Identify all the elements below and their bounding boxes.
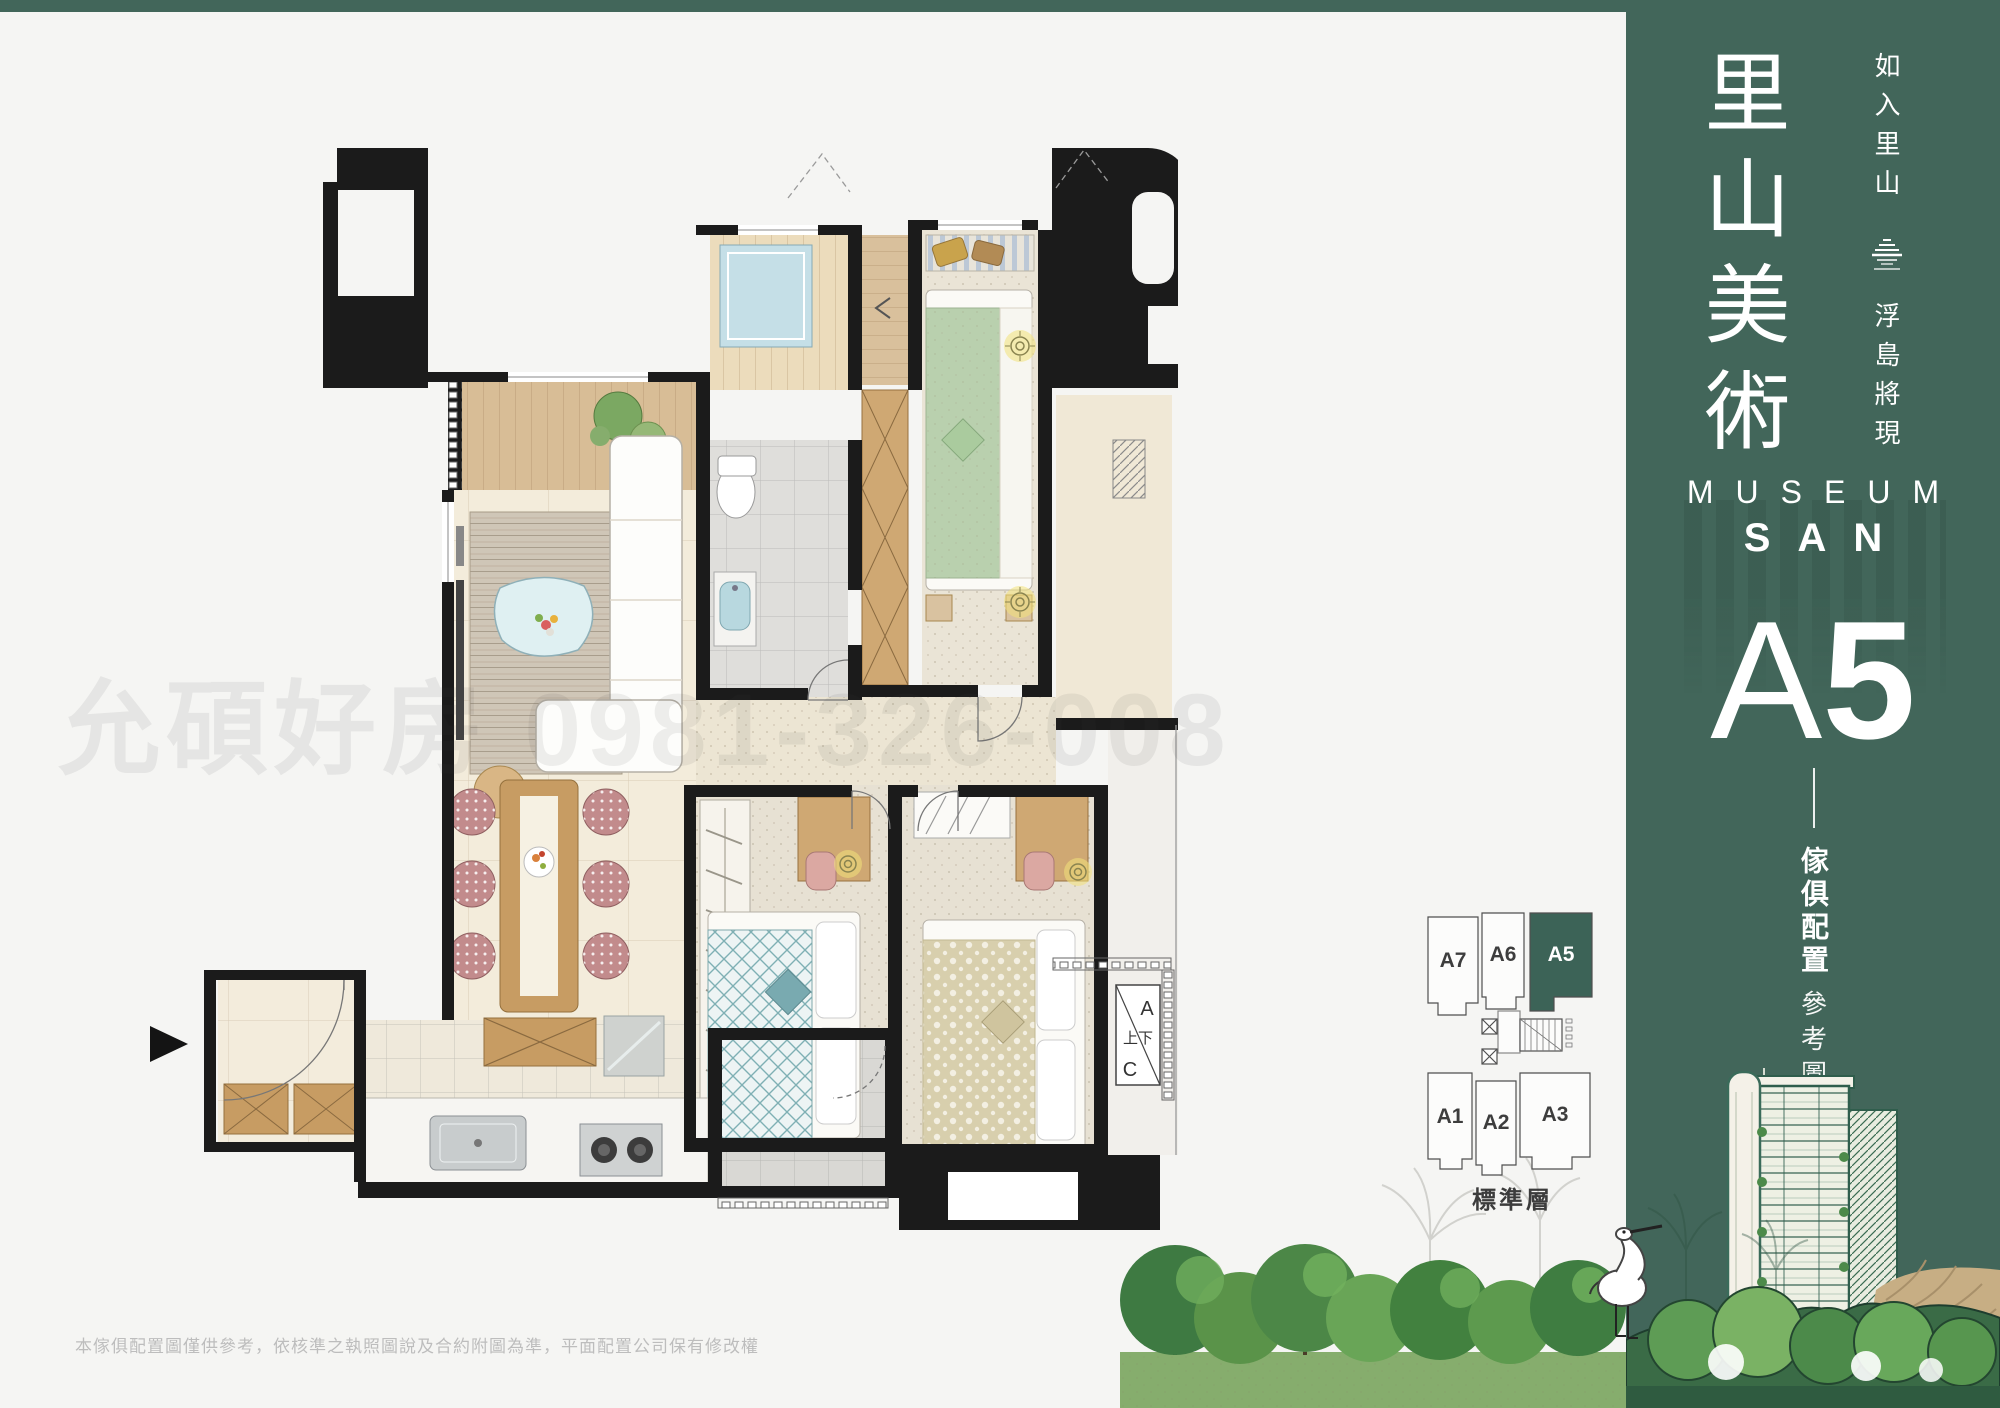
keyplan-label-a3: A3 bbox=[1542, 1103, 1569, 1126]
poster-page: A 上下 C 允碩好房 0981-326-008 bbox=[0, 0, 2000, 1408]
tagline-bottom: 浮島將現 bbox=[1868, 302, 1905, 458]
palm-sketch-icon bbox=[1648, 1194, 1808, 1310]
watermark: 允碩好房 0981-326-008 bbox=[58, 648, 1232, 795]
ceiling-light-icon bbox=[1004, 330, 1036, 362]
pillow bbox=[1037, 930, 1075, 1030]
project-title: 里山美術 bbox=[1696, 48, 1782, 472]
disclaimer-text: 本傢俱配置圖僅供參考，依核準之執照圖說及合約附圖為準，平面配置公司保有修改權 bbox=[75, 1332, 759, 1357]
pillow bbox=[816, 1028, 856, 1124]
terrace-hatch bbox=[1113, 440, 1145, 498]
entrance-arrow-icon bbox=[150, 1026, 188, 1062]
tagline-top: 如入里山 bbox=[1868, 52, 1905, 208]
sidebar-panel: 里山美術 如入里山 浮島將現 MUSEUM SAN A5 bbox=[1626, 0, 2000, 1408]
keyplan-label-a1: A1 bbox=[1437, 1105, 1464, 1128]
brand-san: SAN bbox=[1626, 516, 2000, 561]
brand-museum: MUSEUM bbox=[1626, 474, 2000, 511]
cabinet bbox=[914, 792, 1010, 838]
egret-icon bbox=[1576, 1206, 1672, 1342]
keyplan-label-a7: A7 bbox=[1440, 949, 1467, 972]
unit-number: 5 bbox=[1822, 586, 1915, 774]
panel-trees-illustration bbox=[1626, 1190, 2000, 1408]
pillow bbox=[1037, 1040, 1075, 1140]
chair bbox=[1024, 852, 1054, 890]
keyplan-label-a5: A5 bbox=[1548, 943, 1575, 966]
unit-label: A5 bbox=[1626, 596, 2000, 764]
unit-letter: A bbox=[1710, 586, 1822, 774]
keyplan-label-a6: A6 bbox=[1490, 943, 1517, 966]
stair-letter-bottom: C bbox=[1123, 1059, 1137, 1081]
chair bbox=[806, 852, 836, 890]
ceiling-light-icon bbox=[1004, 586, 1036, 618]
floorplan-card: A 上下 C 允碩好房 0981-326-008 bbox=[0, 12, 1626, 1408]
layered-island-icon bbox=[1869, 234, 1905, 276]
ceiling-light-icon bbox=[1064, 858, 1092, 886]
stair-letter-top: A bbox=[1140, 998, 1154, 1020]
caption-furniture-layout: 傢俱配置 bbox=[1793, 846, 1833, 978]
nightstand bbox=[926, 595, 952, 621]
pillow bbox=[816, 922, 856, 1018]
divider-line bbox=[1813, 768, 1815, 828]
keyplan-label-a2: A2 bbox=[1483, 1111, 1510, 1134]
tree-icon bbox=[1120, 1244, 1626, 1364]
fruit-plate bbox=[524, 847, 554, 877]
study-desk bbox=[720, 245, 812, 347]
keyplan: A7 A6 A5 A1 A2 A3 bbox=[1420, 903, 1605, 1178]
stair-updown-label: 上下 bbox=[1123, 1030, 1153, 1047]
coffee-table bbox=[494, 577, 592, 656]
stair-box: A 上下 C bbox=[1116, 985, 1160, 1085]
ceiling-light-icon bbox=[834, 850, 862, 878]
